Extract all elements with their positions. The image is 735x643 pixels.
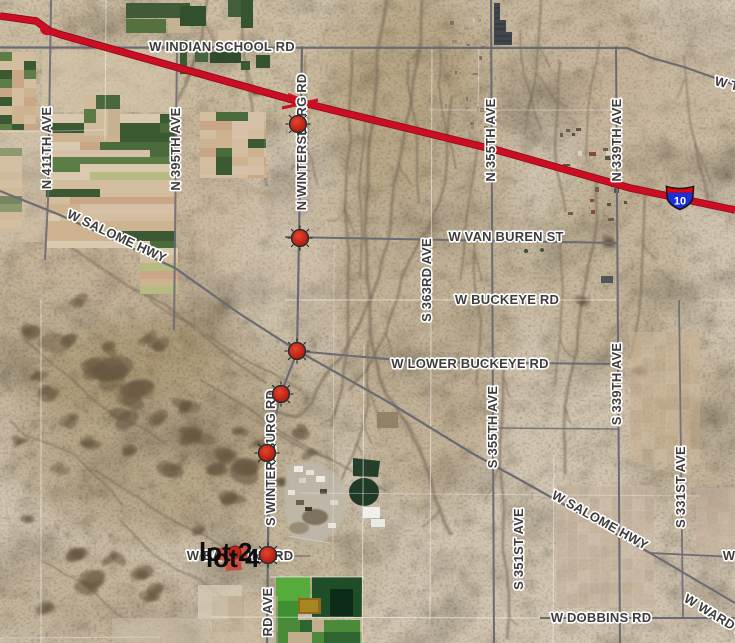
svg-text:W VAN BUREN ST: W VAN BUREN ST bbox=[448, 229, 563, 244]
svg-text:N 395TH AVE: N 395TH AVE bbox=[168, 107, 183, 190]
svg-text:N WINTERSBURG RD: N WINTERSBURG RD bbox=[294, 74, 309, 211]
svg-text:S 351ST AVE: S 351ST AVE bbox=[511, 508, 526, 590]
svg-text:N 355TH AVE: N 355TH AVE bbox=[483, 98, 498, 181]
svg-text:S 331ST AVE: S 331ST AVE bbox=[673, 446, 688, 528]
svg-text:N 411TH AVE: N 411TH AVE bbox=[39, 107, 54, 190]
svg-text:W DOBBINS RD: W DOBBINS RD bbox=[551, 610, 652, 625]
svg-text:lot 4: lot 4 bbox=[206, 543, 260, 573]
svg-text:W: W bbox=[723, 548, 735, 563]
svg-text:S 355TH AVE: S 355TH AVE bbox=[485, 386, 500, 469]
svg-text:S 339TH AVE: S 339TH AVE bbox=[609, 343, 624, 426]
svg-text:S 363RD AVE: S 363RD AVE bbox=[419, 238, 434, 322]
svg-text:10: 10 bbox=[674, 196, 686, 208]
svg-text:N 339TH AVE: N 339TH AVE bbox=[609, 98, 624, 181]
svg-text:RD AVE: RD AVE bbox=[260, 587, 275, 636]
svg-text:W BUCKEYE RD: W BUCKEYE RD bbox=[455, 292, 559, 307]
svg-text:W LOWER BUCKEYE RD: W LOWER BUCKEYE RD bbox=[391, 356, 548, 371]
svg-text:W INDIAN SCHOOL RD: W INDIAN SCHOOL RD bbox=[149, 39, 295, 54]
